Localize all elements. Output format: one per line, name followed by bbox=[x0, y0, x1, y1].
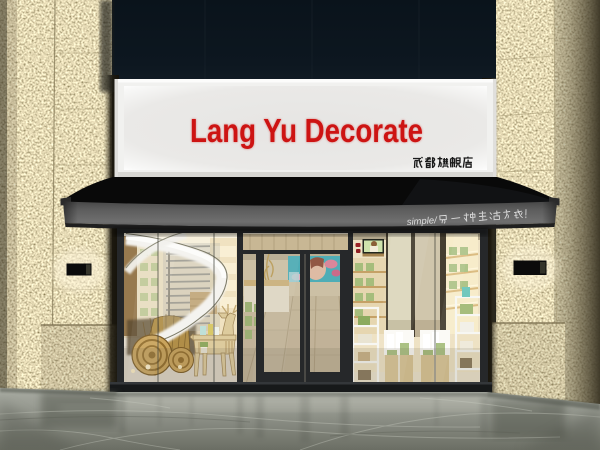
svg-text:Lang Yu Decorate: Lang Yu Decorate bbox=[190, 113, 423, 150]
svg-text:simple/: simple/ bbox=[407, 215, 439, 228]
